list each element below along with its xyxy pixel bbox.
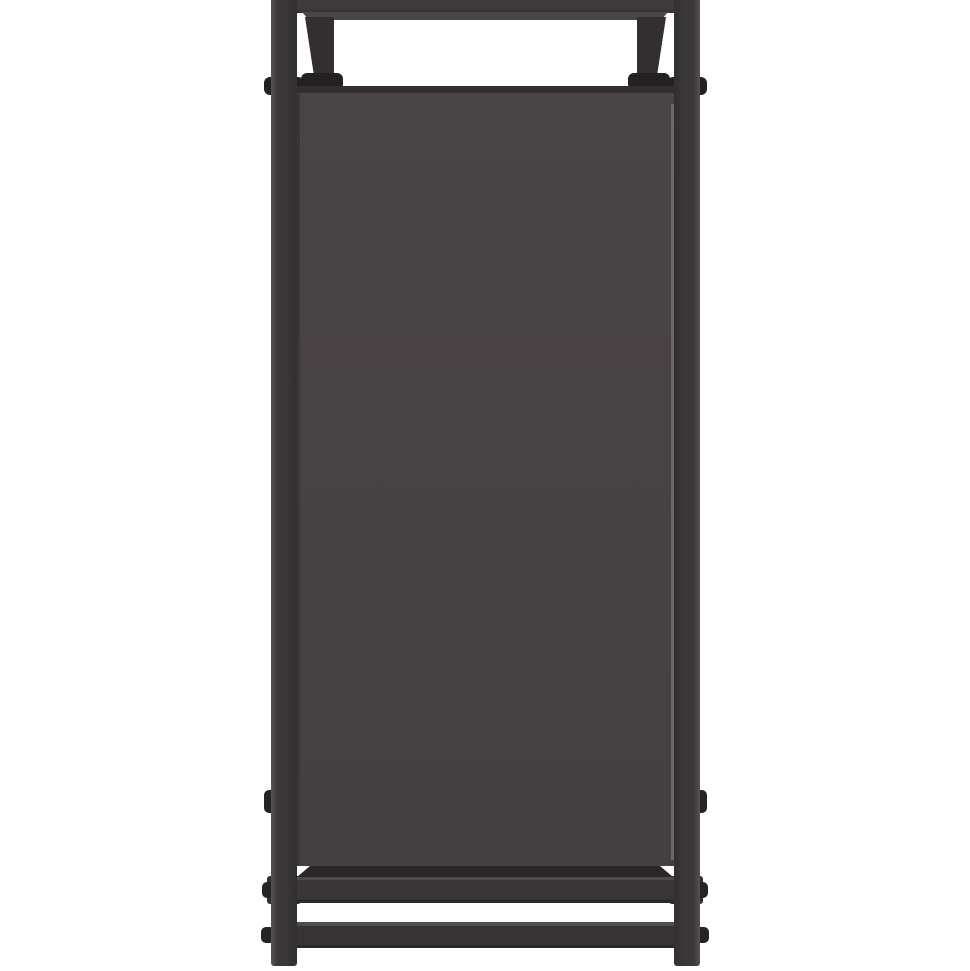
top-shelf-surface <box>271 0 700 13</box>
left-post-leg <box>271 0 297 966</box>
fabric-panel <box>295 93 675 866</box>
product-photo-canvas <box>0 0 970 971</box>
panel-top-edge <box>295 86 675 93</box>
top-shelf-front-lip <box>302 12 668 20</box>
upper-bottom-rail <box>271 877 700 903</box>
panel-bottom-shadow-strip <box>297 866 673 877</box>
right-post-leg <box>674 0 700 966</box>
panel-left-seam <box>297 93 300 866</box>
lower-bottom-rail <box>279 922 691 948</box>
